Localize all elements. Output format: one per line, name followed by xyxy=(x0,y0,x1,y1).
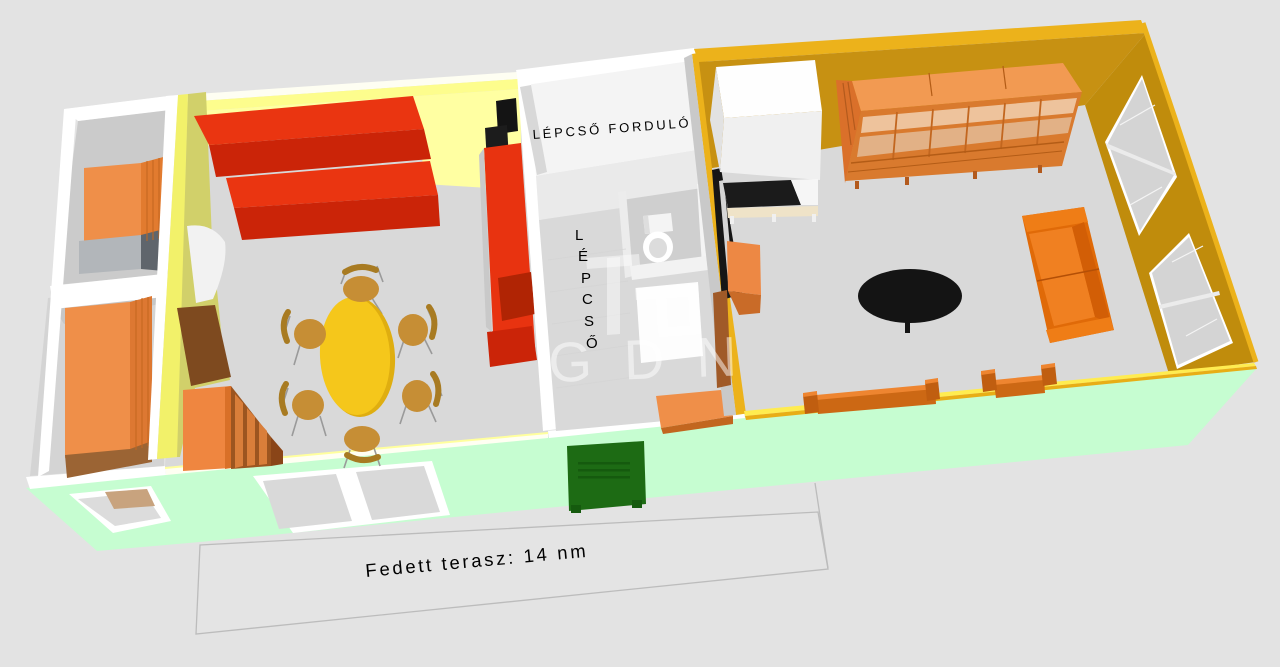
svg-text:C: C xyxy=(582,291,593,308)
svg-text:L: L xyxy=(575,227,583,244)
svg-text:P: P xyxy=(581,270,591,287)
svg-text:S: S xyxy=(584,313,594,330)
svg-text:Ő: Ő xyxy=(586,335,598,352)
svg-text:GDN: GDN xyxy=(547,323,770,394)
svg-text:É: É xyxy=(578,248,588,265)
